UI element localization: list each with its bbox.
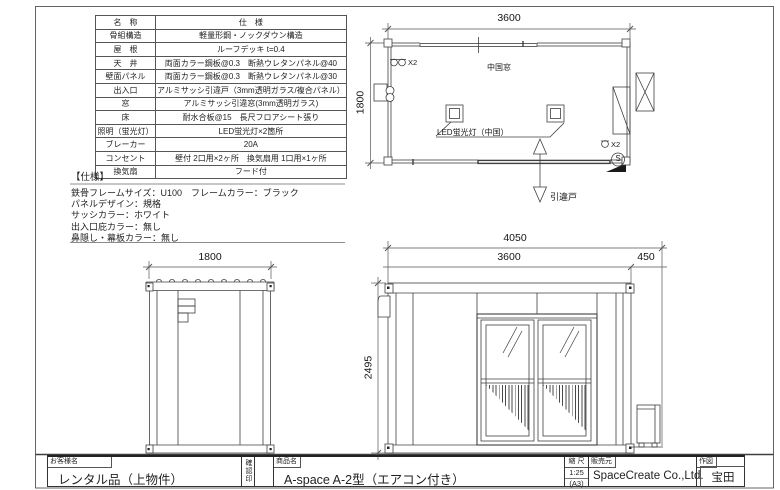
side-vent-hood bbox=[178, 299, 195, 322]
spec-note-line: パネルデザイン：規格 bbox=[71, 199, 351, 210]
product-cell: 商品名 A-space A-2型（エアコン付き） bbox=[273, 457, 564, 486]
customer-label: お客様名 bbox=[48, 457, 112, 468]
spec-notes-title: 【仕様】 bbox=[71, 169, 351, 183]
front-offset-dim: 450 bbox=[626, 251, 666, 264]
front-body bbox=[388, 283, 631, 453]
spec-note-line: 鉄骨フレームサイズ：U100 フレームカラー：ブラック bbox=[71, 188, 351, 199]
scale-paper: (A3) bbox=[565, 479, 588, 489]
scale-cell: 縮 尺 1:25 (A3) bbox=[564, 457, 588, 486]
side-roof bbox=[146, 279, 274, 290]
table-row: 照明（蛍光灯）LED蛍光灯×2箇所 bbox=[96, 124, 347, 138]
front-body-dim: 3600 bbox=[479, 251, 539, 264]
spec-note-line: 鼻隠し・幕板カラー：無し bbox=[71, 233, 351, 244]
vent-fan-symbol bbox=[374, 84, 394, 102]
product-label: 商品名 bbox=[274, 457, 301, 468]
table-row: 骨組構造軽量形鋼・ノックダウン構造 bbox=[96, 29, 347, 43]
window-symbol bbox=[420, 37, 537, 53]
front-elevation bbox=[371, 241, 667, 460]
table-row: 名 称仕 様 bbox=[96, 16, 347, 30]
author-value: 宝田 bbox=[700, 466, 745, 486]
col-header-spec: 仕 様 bbox=[156, 16, 347, 30]
product-value: A-space A-2型（エアコン付き） bbox=[284, 469, 465, 488]
spec-notes: 【仕様】 鉄骨フレームサイズ：U100 フレームカラー：ブラック パネルデザイン… bbox=[71, 169, 351, 244]
table-row: 出入口アルミサッシ引違戸（3mm透明ガラス/複合パネル） bbox=[96, 83, 347, 97]
title-block: お客様名 レンタル品（上物件） 確認印 商品名 A-space A-2型（エアコ… bbox=[47, 455, 745, 487]
door-arrow-symbol bbox=[534, 139, 547, 202]
author-cell: 作図 宝田 bbox=[696, 457, 745, 486]
door-symbol bbox=[478, 159, 626, 172]
stamp-space-cell bbox=[254, 457, 273, 486]
table-row: 天 井両面カラー鋼板@0.3 断熱ウレタンパネル@40 bbox=[96, 56, 347, 70]
ac-outdoor-unit-front bbox=[631, 405, 663, 447]
front-height-dim: 2495 bbox=[363, 347, 376, 389]
table-row: 屋 根ルーフデッキ t=0.4 bbox=[96, 43, 347, 57]
seller-value: SpaceCreate Co.,Ltd. bbox=[593, 470, 704, 482]
customer-cell: お客様名 レンタル品（上物件） bbox=[48, 457, 241, 486]
front-total-dim: 4050 bbox=[485, 232, 545, 245]
front-vent-hood bbox=[378, 296, 390, 317]
plan-width-dim: 3600 bbox=[479, 12, 539, 25]
spec-note-line: サッシカラー：ホワイト bbox=[71, 210, 351, 221]
scale-value: 1:25 bbox=[565, 468, 588, 479]
stamp-label: 確認印 bbox=[243, 459, 253, 483]
table-row: コンセント壁付 2口用×2ヶ所 換気扇用 1口用×1ヶ所 bbox=[96, 151, 347, 165]
side-width-dim: 1800 bbox=[180, 251, 240, 264]
side-corner-fittings bbox=[146, 283, 274, 453]
door-label: 引違戸 bbox=[550, 190, 577, 203]
table-row: 窓アルミサッシ引違窓(3mm透明ガラス) bbox=[96, 97, 347, 111]
seller-label: 販売元 bbox=[589, 457, 616, 468]
outlet-count-label-2: X2 bbox=[611, 140, 620, 149]
ac-indoor-unit bbox=[613, 87, 630, 134]
plan-corner-posts bbox=[384, 39, 630, 165]
table-row: ブレーカー20A bbox=[96, 138, 347, 152]
window-label: 中国窓 bbox=[474, 62, 524, 73]
outlet-symbol bbox=[390, 59, 406, 66]
col-header-name: 名 称 bbox=[96, 16, 156, 30]
seller-cell: 販売元 SpaceCreate Co.,Ltd. bbox=[588, 457, 696, 486]
outlet-symbol-2 bbox=[601, 141, 609, 148]
spec-table: 名 称仕 様 骨組構造軽量形鋼・ノックダウン構造 屋 根ルーフデッキ t=0.4… bbox=[95, 15, 347, 179]
outlet-count-label: X2 bbox=[408, 58, 417, 67]
side-body bbox=[150, 291, 271, 454]
plan-depth-dim: 1800 bbox=[355, 83, 368, 123]
switch-letter: S bbox=[613, 154, 624, 163]
side-elevation bbox=[143, 261, 277, 453]
table-row: 壁面パネル両面カラー鋼板@0.3 断熱ウレタンパネル@30 bbox=[96, 70, 347, 84]
stamp-cell: 確認印 bbox=[241, 457, 254, 486]
led-light-label: LED蛍光灯（中国） bbox=[437, 127, 509, 138]
spec-note-line: 出入口庇カラー：無し bbox=[71, 222, 351, 233]
scale-label: 縮 尺 bbox=[565, 457, 588, 468]
customer-value: レンタル品（上物件） bbox=[58, 469, 183, 488]
plan-view bbox=[365, 23, 654, 202]
ac-outdoor-unit-plan bbox=[636, 73, 654, 111]
drawing-sheet: 名 称仕 様 骨組構造軽量形鋼・ノックダウン構造 屋 根ルーフデッキ t=0.4… bbox=[0, 0, 780, 490]
table-row: 床耐水合板@15 長尺フロアシート張り bbox=[96, 111, 347, 125]
